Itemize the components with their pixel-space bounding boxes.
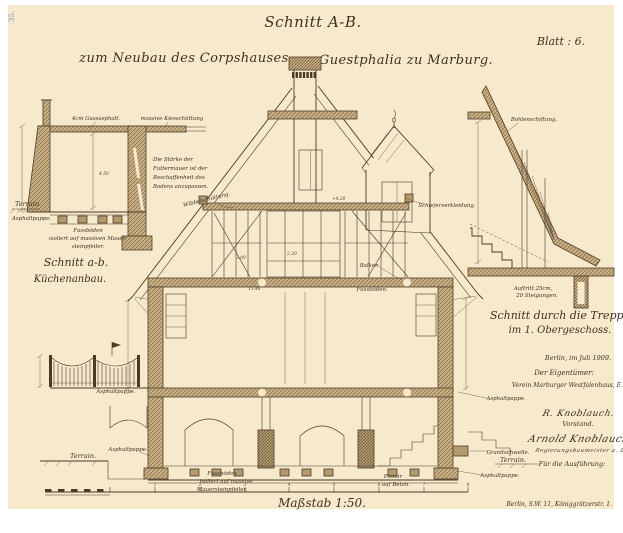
kitchen-label-terrain: Terrain. <box>15 200 41 208</box>
drawing-sheet: 35. Schnitt A-B. zum Neubau des Corpshau… <box>0 0 623 533</box>
kitchen-dim-room-height: 4.50 <box>98 172 109 177</box>
signature-2-role: Regierungsbaumeister a. D. <box>534 448 623 454</box>
label-pissoir-1: Pissoir <box>383 474 403 480</box>
label-auftritt-2: 20 Steigungen. <box>515 293 558 299</box>
label-auftritt-1: Auftritt 25cm, <box>513 286 553 292</box>
signature-1-role: Vorstand. <box>562 420 593 428</box>
ground-floor <box>148 388 453 397</box>
label-terrain-left: Terrain. <box>70 452 96 460</box>
kitchen-note-line4: Bodens anzupassen. <box>152 184 209 190</box>
kitchen-label-fussboden-1: Fussböden <box>72 228 103 234</box>
scale-tick-8: 8 <box>467 483 470 488</box>
kitchen-caption-2: Küchenanbau. <box>33 274 106 285</box>
kitchen-label-fussboden-2: isoliert auf massiven Mauer- <box>49 236 127 242</box>
scale-tick-1: 1 <box>154 483 157 488</box>
execution-heading: Für die Ausführung: <box>538 460 606 468</box>
label-fussboden-main-1: Fussböden <box>206 471 237 477</box>
label-bohlenschiftung: Bohlenschiftung. <box>510 117 558 123</box>
scale-tick-4: 4 <box>287 483 291 488</box>
date-line: Berlin, im Juli 1909. <box>544 354 611 362</box>
kitchen-label-gussasphalt: 4cm Gussasphalt. <box>71 116 121 122</box>
sheet-label: Blatt : 6. <box>536 35 585 48</box>
label-asphaltpappe-right-upper: Asphaltpappe. <box>485 396 525 402</box>
dim-lower-room: 3.00 <box>236 256 246 261</box>
owner-heading: Der Eigentümer: <box>533 369 594 377</box>
kitchen-label-kiesschuettung: massive Kiesschüttung <box>141 116 204 122</box>
scale-tick-3: 3 <box>244 483 247 488</box>
dim-level: 13.48 <box>248 287 261 292</box>
scale-tick-5: 5 <box>333 483 336 488</box>
scale-tick-6: 6 <box>378 483 381 488</box>
signature-1: R. Knoblauch. <box>540 409 615 419</box>
beam-floor <box>148 278 453 287</box>
label-schieferverkleidung: Schieferverkleidung. <box>418 203 475 209</box>
stair-caption-1: Schnitt durch die Treppe <box>490 309 623 322</box>
label-asphaltpappe-left-upper: Asphaltpappe. <box>95 389 135 395</box>
dim-attic-level: +4.28 <box>332 197 346 202</box>
scale-label: Maßstab 1:50. <box>277 496 366 510</box>
kitchen-note-line3: Beschaffenheit des <box>152 175 205 181</box>
signature-2: Arnold Knoblauch <box>526 434 623 445</box>
stair-caption-2: im 1. Obergeschoss. <box>509 325 612 336</box>
kitchen-note-line2: Futtermauer ist der <box>152 166 208 172</box>
subtitle-left: zum Neubau des Corpshauses <box>78 51 288 66</box>
owner-name: Verein Marburger Westfalenhaus, E.V. <box>512 382 623 389</box>
page-title: Schnitt A-B. <box>264 13 361 31</box>
kitchen-label-asphaltpappe: Asphaltpappe. <box>11 216 51 222</box>
subtitle-right: Guestphalia zu Marburg. <box>319 53 493 68</box>
label-fussboeden: Fussböden. <box>355 287 388 293</box>
kitchen-flue <box>41 100 52 126</box>
dim-upper-room: 2.20 <box>286 252 297 257</box>
kitchen-caption-1: Schnitt a-b. <box>44 256 109 269</box>
label-asphaltpappe-right-lower: Asphaltpappe. <box>479 473 519 479</box>
kitchen-label-fussboden-3: steinpfeiler. <box>72 244 105 250</box>
label-terrain-right: Terrain. <box>500 456 526 464</box>
kitchen-ceiling-slab <box>38 126 206 132</box>
label-balken: Balken. <box>359 263 381 269</box>
label-asphaltpappe-left-lower: Asphaltpappe. <box>107 447 147 453</box>
label-pissoir-2: auf Beton. <box>382 482 410 488</box>
printer-address: Berlin, S.W. 11, Königgrätzerstr. 1. <box>505 501 612 508</box>
scale-tick-7: 7 <box>423 483 426 488</box>
corner-stamp: 35. <box>8 11 16 22</box>
kitchen-note-line1: Die Stärke der <box>152 157 193 163</box>
scale-tick-2: 2 <box>198 483 202 488</box>
